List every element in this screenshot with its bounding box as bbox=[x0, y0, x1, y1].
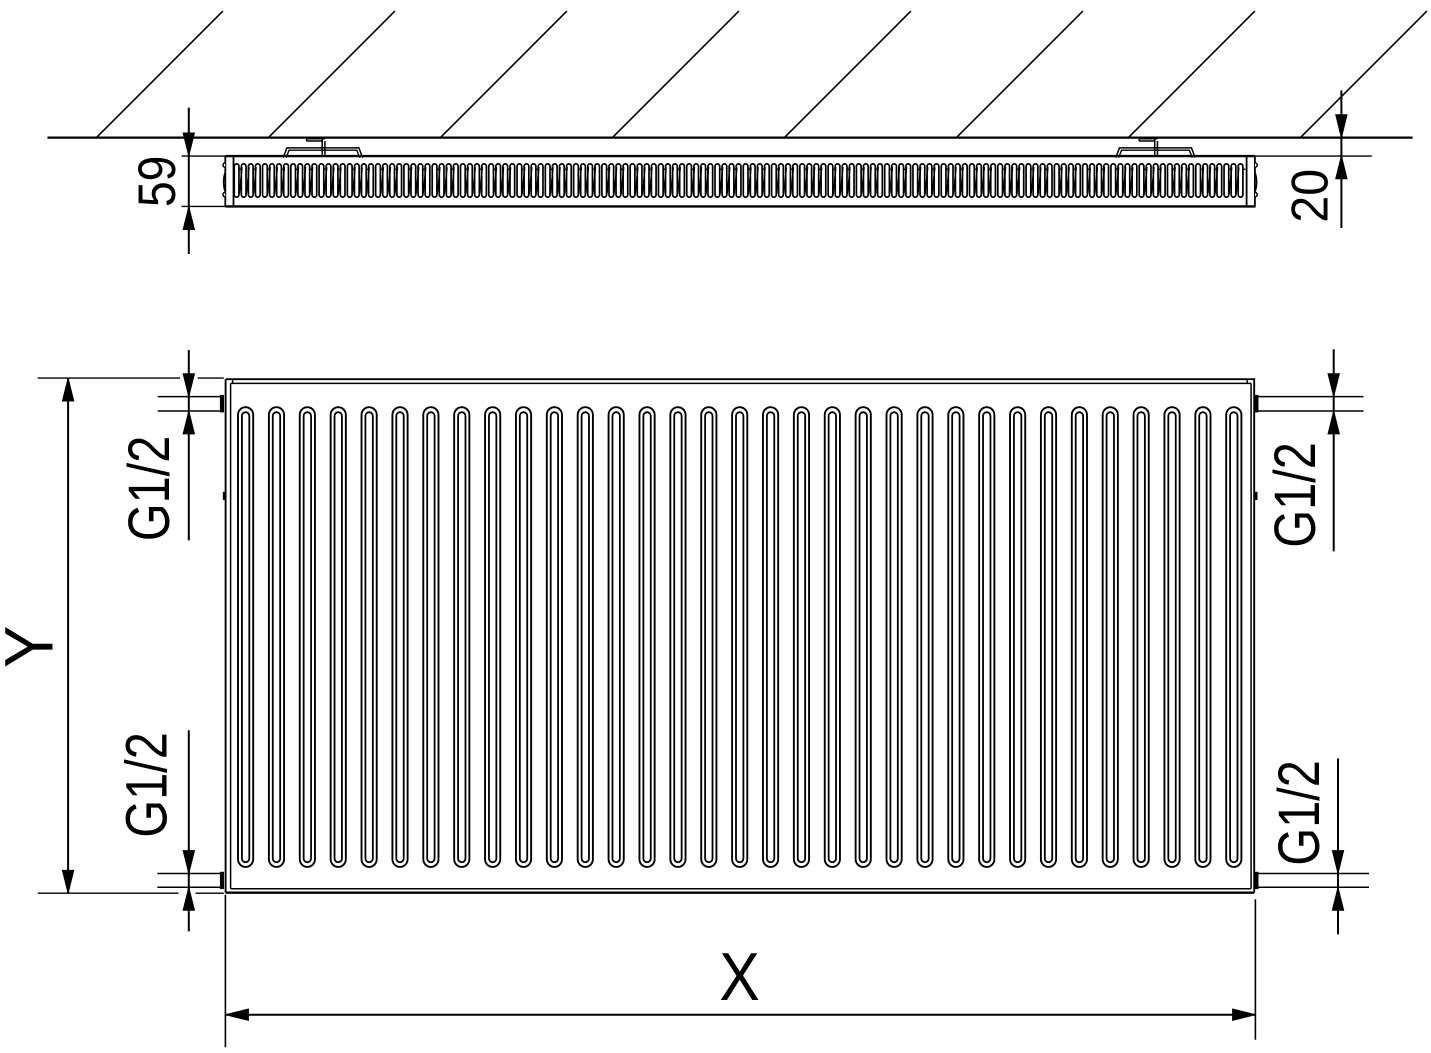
svg-text:G1/2: G1/2 bbox=[1268, 760, 1332, 866]
svg-text:G1/2: G1/2 bbox=[116, 732, 180, 838]
svg-text:Y: Y bbox=[0, 626, 68, 668]
svg-text:G1/2: G1/2 bbox=[1264, 442, 1328, 548]
svg-text:20: 20 bbox=[1281, 169, 1339, 223]
svg-text:X: X bbox=[719, 939, 759, 1015]
svg-text:59: 59 bbox=[127, 156, 187, 207]
svg-text:G1/2: G1/2 bbox=[118, 436, 182, 542]
